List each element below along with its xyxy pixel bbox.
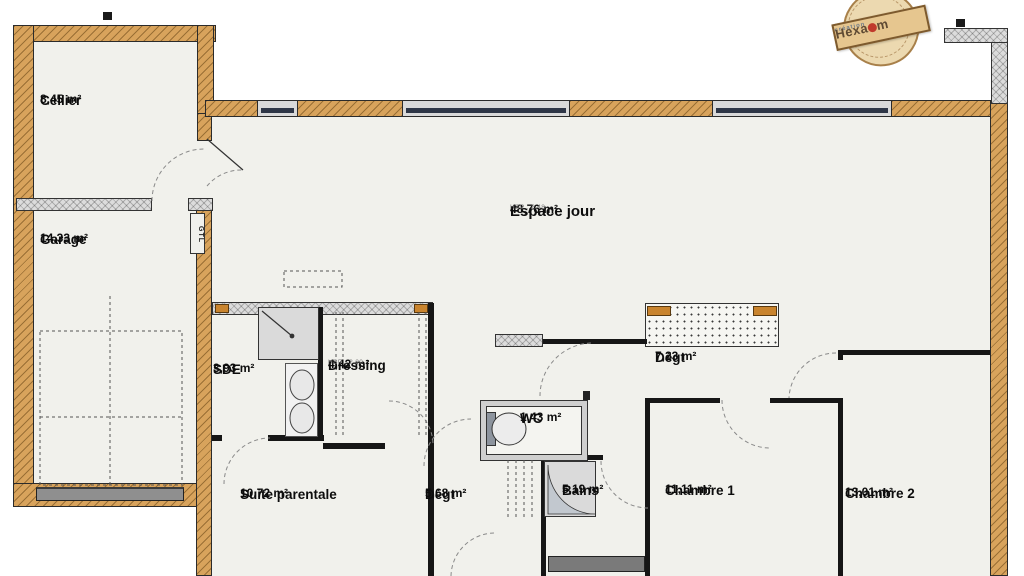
wall-sde-bottom-a [212,435,222,441]
wall-cellier-garage-2 [188,198,213,211]
wood-post [215,304,229,313]
wall-marker [103,12,112,20]
exterior-wall-left [13,25,34,507]
window-living-2 [712,100,892,117]
wall-hall-top [543,339,647,344]
wall-hall-bottom-b [770,398,838,403]
stamp-brand: Hexam [834,17,890,41]
porch-wall-top [944,28,1008,43]
hexaom-stamp: création Hexam [830,0,935,82]
wall-dressing-right [428,303,434,576]
exterior-wall-top-4 [891,100,1005,117]
wall-cellier-garage [16,198,152,211]
window-living-1 [402,100,570,117]
exterior-wall-top-left [13,25,216,42]
garage-door [36,487,184,501]
wood-post [414,304,428,313]
wall-dressing-bottom [323,443,385,449]
shower-sde [258,307,319,360]
floor-plan: GTL [0,0,1024,576]
exterior-wall-top-2 [296,100,404,117]
exterior-wall-top-3 [569,100,715,117]
exterior-wall-garage-right [196,199,212,576]
exterior-wall-segment [197,113,212,141]
wall-hall-hatch [495,334,543,347]
exterior-wall-top-1 [205,100,258,117]
wall-hall-bottom-a [648,398,720,403]
window-glass [406,108,566,113]
exterior-wall-right [990,100,1008,576]
gtl-label: GTL [197,226,204,243]
bath-vanity [548,556,645,572]
wall-chambre2-top [838,350,990,355]
window-small [257,100,298,117]
wall-chambre1-chambre2 [838,398,843,576]
gtl-duct: GTL [190,213,205,254]
window-glass [261,108,294,113]
wall-chambre1-left [645,398,650,576]
wood-post [647,306,671,316]
window-glass [716,108,888,113]
wall-divider-stub [838,352,843,360]
wood-post [753,306,777,316]
wall-marker [956,19,965,27]
toilet-tank [486,412,496,446]
vanity-sde [285,363,318,437]
